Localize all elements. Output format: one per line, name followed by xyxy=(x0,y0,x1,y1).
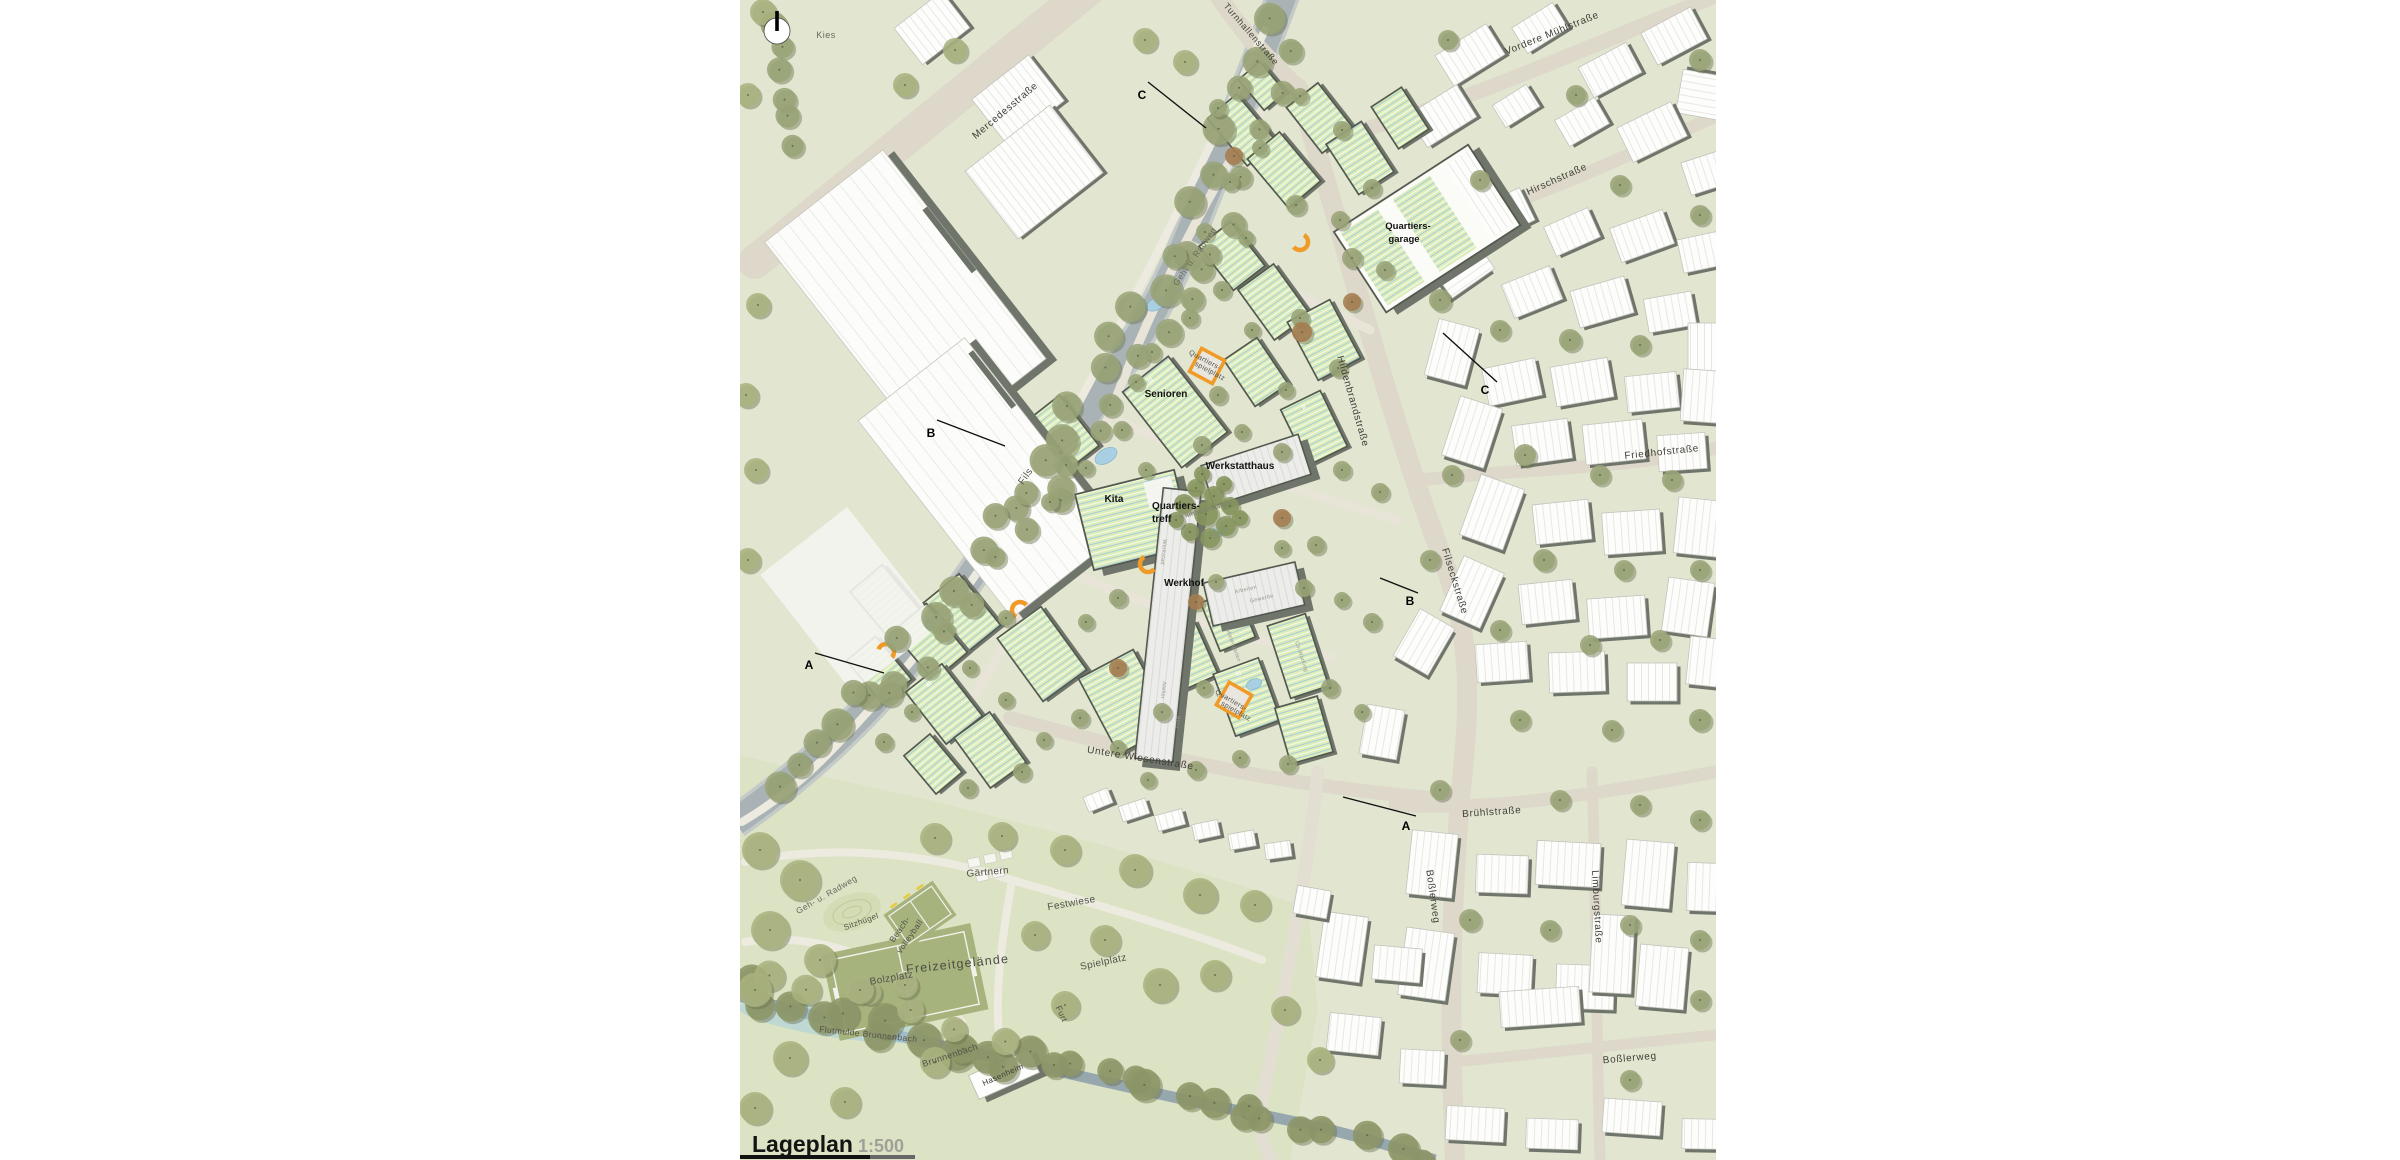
tree-center xyxy=(1203,687,1205,689)
tree-center xyxy=(798,764,800,766)
tree-center xyxy=(1117,597,1119,599)
white-roof xyxy=(1635,944,1688,1010)
existing-building xyxy=(1602,509,1667,559)
white-roof xyxy=(1475,854,1528,894)
tree-center xyxy=(1329,687,1331,689)
white-roof xyxy=(1326,1012,1382,1055)
tree-center xyxy=(1184,61,1186,63)
tree-center xyxy=(757,304,759,306)
tree-center xyxy=(1671,479,1673,481)
tree-center xyxy=(1479,179,1481,181)
tree-center xyxy=(754,1107,756,1109)
tree-center xyxy=(1319,1059,1321,1061)
tree-center xyxy=(1239,517,1241,519)
tree-center xyxy=(1049,501,1051,503)
tree-center xyxy=(759,849,761,851)
tree-center xyxy=(1315,544,1317,546)
existing-building xyxy=(1685,636,1734,692)
tree-center xyxy=(836,723,838,725)
existing-building xyxy=(1499,986,1585,1031)
tree-center xyxy=(934,837,936,839)
tree-center xyxy=(911,711,913,713)
tree-center xyxy=(927,666,929,668)
tree-center xyxy=(969,667,971,669)
tree-center xyxy=(1215,581,1217,583)
existing-building xyxy=(1602,1098,1666,1140)
existing-building xyxy=(1582,419,1650,469)
tree-center xyxy=(983,549,985,551)
tree-center xyxy=(1129,306,1131,308)
tree-center xyxy=(1256,60,1258,62)
tree-center xyxy=(1499,629,1501,631)
tree-center xyxy=(1137,355,1139,357)
tree-center xyxy=(1214,974,1216,976)
tree-center xyxy=(1209,537,1211,539)
section-marker-a2: A xyxy=(1402,819,1411,833)
tree-center xyxy=(1069,1062,1071,1064)
tree-center xyxy=(1239,757,1241,759)
tree-center xyxy=(1295,204,1297,206)
tree-center xyxy=(1108,335,1110,337)
white-roof xyxy=(1548,651,1605,693)
tree-center xyxy=(747,559,749,561)
tree-center xyxy=(1209,253,1211,255)
tree-center xyxy=(1269,17,1271,19)
existing-building xyxy=(1532,499,1596,548)
tree-center xyxy=(1015,507,1017,509)
tree-center xyxy=(943,630,945,632)
tree-center xyxy=(1239,176,1241,178)
tree-center xyxy=(1285,389,1287,391)
tree-center xyxy=(1104,939,1106,941)
section-marker-b1: B xyxy=(927,426,936,440)
tree-center xyxy=(1623,569,1625,571)
tree-center xyxy=(1025,492,1027,494)
existing-building xyxy=(1635,944,1692,1014)
tree-center xyxy=(805,989,807,991)
tree-center xyxy=(1469,919,1471,921)
tree-center xyxy=(755,469,757,471)
tree-center xyxy=(935,616,937,618)
tree-center xyxy=(910,1009,912,1011)
tree-center xyxy=(1065,464,1067,466)
existing-building xyxy=(1673,497,1726,561)
label-werkstatthaus: Werkstatthaus xyxy=(1206,461,1275,472)
tree-center xyxy=(1361,711,1363,713)
tree-center xyxy=(1217,107,1219,109)
tree-center xyxy=(1429,559,1431,561)
tree-center xyxy=(994,515,996,517)
tree-center xyxy=(1189,201,1191,203)
tree-center xyxy=(1144,39,1146,41)
section-marker-c1: C xyxy=(1138,88,1147,102)
white-roof xyxy=(1661,577,1714,637)
tree-center xyxy=(1147,779,1149,781)
tree-center xyxy=(896,637,898,639)
tree-center xyxy=(1241,431,1243,433)
existing-building xyxy=(1518,579,1580,628)
tree-center xyxy=(923,1039,925,1041)
white-roof xyxy=(1499,986,1581,1027)
tree-center xyxy=(1005,699,1007,701)
tree-center xyxy=(1238,87,1240,89)
tree-center xyxy=(1213,495,1215,497)
existing-building xyxy=(1682,1119,1726,1153)
existing-building xyxy=(1326,1012,1386,1059)
tree-center xyxy=(1174,255,1176,257)
label-senioren: Senioren xyxy=(1145,389,1188,400)
tree-center xyxy=(1135,381,1137,383)
title-block: Lageplan 1:500 xyxy=(740,1131,915,1159)
tree-center xyxy=(1351,301,1353,303)
white-roof xyxy=(1264,840,1292,859)
tree-center xyxy=(1199,894,1201,896)
tree-center xyxy=(1699,939,1701,941)
tree-center xyxy=(1161,711,1163,713)
white-roof xyxy=(1676,69,1741,122)
tree-center xyxy=(1459,1039,1461,1041)
tree-center xyxy=(1221,289,1223,291)
tree-center xyxy=(1549,929,1551,931)
tree-center xyxy=(1699,569,1701,571)
tree-center xyxy=(1100,430,1102,432)
white-roof xyxy=(1673,497,1723,557)
white-roof xyxy=(1621,839,1675,909)
tree-center xyxy=(1201,268,1203,270)
white-roof xyxy=(1688,323,1728,373)
tree-center xyxy=(1189,531,1191,533)
existing-building xyxy=(1676,66,1745,123)
tree-center xyxy=(799,879,801,881)
tree-center xyxy=(1117,667,1119,669)
tree-center xyxy=(1524,454,1526,456)
existing-building xyxy=(1399,1049,1448,1089)
tree-center xyxy=(1699,819,1701,821)
tree-center xyxy=(1629,1079,1631,1081)
tree-center xyxy=(1085,621,1087,623)
tree-center xyxy=(1001,835,1003,837)
tree-center xyxy=(1320,1129,1322,1131)
white-roof xyxy=(1602,509,1663,555)
white-roof xyxy=(1445,1106,1505,1143)
tree-center xyxy=(1165,289,1167,291)
tree-center xyxy=(1229,181,1231,183)
tree-center xyxy=(1299,95,1301,97)
tree-center xyxy=(1282,92,1284,94)
tree-center xyxy=(1002,1066,1004,1068)
tree-center xyxy=(1045,459,1047,461)
tree-center xyxy=(1284,1009,1286,1011)
tree-center xyxy=(904,84,906,86)
tree-center xyxy=(1339,219,1341,221)
white-roof xyxy=(1372,945,1423,983)
existing-building xyxy=(1548,651,1609,697)
tree-center xyxy=(1064,849,1066,851)
white-roof xyxy=(1686,862,1726,911)
tree-center xyxy=(987,1056,989,1058)
tree-center xyxy=(1300,1129,1302,1131)
tree-center xyxy=(819,959,821,961)
tree-center xyxy=(816,742,818,744)
tree-center xyxy=(1371,187,1373,189)
tree-center xyxy=(1290,50,1292,52)
tree-center xyxy=(1251,329,1253,331)
white-roof xyxy=(1532,499,1592,545)
tree-center xyxy=(967,787,969,789)
tree-center xyxy=(786,115,788,117)
tree-center xyxy=(1379,491,1381,493)
tree-center xyxy=(1201,444,1203,446)
plan-title: Lageplan xyxy=(752,1131,853,1157)
tree-center xyxy=(745,394,747,396)
tree-center xyxy=(1351,257,1353,259)
tree-center xyxy=(1619,184,1621,186)
white-roof xyxy=(1525,1118,1578,1150)
existing-building xyxy=(1525,1118,1582,1153)
tree-center xyxy=(1061,439,1063,441)
tree-center xyxy=(779,786,781,788)
white-roof xyxy=(1587,595,1648,639)
existing-building xyxy=(1688,323,1732,377)
tree-center xyxy=(1589,644,1591,646)
white-roof xyxy=(1293,885,1331,918)
tree-center xyxy=(1104,367,1106,369)
white-roof xyxy=(1627,663,1677,701)
map-content: IVIVIIIIIIIIIIIIIIIIIIIIII xyxy=(734,0,1744,1160)
tree-center xyxy=(1451,474,1453,476)
tree-center xyxy=(1134,869,1136,871)
tree-center xyxy=(1281,547,1283,549)
existing-building xyxy=(1621,839,1678,913)
tree-center xyxy=(768,974,770,976)
tree-center xyxy=(971,604,973,606)
tree-center xyxy=(778,69,780,71)
tree-center xyxy=(1439,299,1441,301)
label-quartiersgarage-1: Quartiers- xyxy=(1385,221,1430,232)
tree-center xyxy=(1341,129,1343,131)
tree-center xyxy=(1639,804,1641,806)
white-roof xyxy=(1316,911,1369,982)
tree-center xyxy=(1281,451,1283,453)
existing-building xyxy=(1627,663,1681,705)
tree-center xyxy=(1109,404,1111,406)
tree-center xyxy=(852,692,854,694)
tree-center xyxy=(953,590,955,592)
tree-center xyxy=(953,1028,955,1030)
tree-center xyxy=(1233,155,1235,157)
tree-center xyxy=(783,99,785,101)
tree-center xyxy=(1699,719,1701,721)
tree-center xyxy=(1043,739,1045,741)
tree-center xyxy=(1301,331,1303,333)
tree-center xyxy=(1232,223,1234,225)
tree-center xyxy=(1195,601,1197,603)
tree-center xyxy=(1629,924,1631,926)
tree-center xyxy=(1021,771,1023,773)
tree-center xyxy=(1543,559,1545,561)
site-plan-map: IVIVIIIIIIIIIIIIIIIIIIIIII xyxy=(0,0,2400,1160)
tree-center xyxy=(1034,934,1036,936)
tree-center xyxy=(1053,1064,1055,1066)
tree-center xyxy=(1109,1070,1111,1072)
plan-scale: 1:500 xyxy=(858,1136,904,1156)
tree-center xyxy=(904,984,906,986)
tree-center xyxy=(1575,94,1577,96)
tree-center xyxy=(1213,1102,1215,1104)
tree-center xyxy=(1519,719,1521,721)
section-marker-b2: B xyxy=(1406,594,1415,608)
label-quartiersgarage-2: garage xyxy=(1388,234,1419,245)
tree-center xyxy=(1259,147,1261,149)
tree-center xyxy=(884,1019,886,1021)
tree-center xyxy=(1121,429,1123,431)
white-roof xyxy=(1475,641,1530,683)
tree-center xyxy=(1143,1084,1145,1086)
tree-center xyxy=(1026,529,1028,531)
existing-building xyxy=(1587,595,1651,643)
tree-center xyxy=(883,741,885,743)
tree-center xyxy=(1447,39,1449,41)
tree-center xyxy=(762,11,764,13)
site-plan-page: IVIVIIIIIIIIIIIIIIIIIIIIII xyxy=(0,0,2400,1160)
tree-center xyxy=(1303,587,1305,589)
white-roof xyxy=(1477,953,1533,996)
tree-center xyxy=(823,1017,825,1019)
tree-center xyxy=(1499,329,1501,331)
tree-center xyxy=(1659,639,1661,641)
tree-center xyxy=(1213,174,1215,176)
section-marker-c2: C xyxy=(1481,383,1490,397)
tree-center xyxy=(1085,467,1087,469)
tree-center xyxy=(1189,317,1191,319)
tree-center xyxy=(1639,344,1641,346)
tree-center xyxy=(781,46,783,48)
tree-center xyxy=(859,989,861,991)
scale-bar-segment xyxy=(870,1155,915,1159)
existing-building xyxy=(1445,1106,1508,1147)
white-roof xyxy=(1624,371,1679,412)
tree-center xyxy=(1258,128,1260,130)
tree-center xyxy=(769,929,771,931)
tree-center xyxy=(1245,237,1247,239)
label-kies: Kies xyxy=(816,30,836,40)
tree-center xyxy=(1341,469,1343,471)
white-roof xyxy=(1680,369,1724,424)
tree-center xyxy=(1201,473,1203,475)
existing-building xyxy=(1624,371,1683,416)
tree-center xyxy=(747,94,749,96)
tree-center xyxy=(1029,1051,1031,1053)
tree-center xyxy=(789,1005,791,1007)
tree-center xyxy=(1402,1148,1404,1150)
tree-center xyxy=(869,694,871,696)
tree-center xyxy=(1559,799,1561,801)
tree-center xyxy=(888,692,890,694)
tree-center xyxy=(1599,474,1601,476)
tree-center xyxy=(754,989,756,991)
existing-building xyxy=(1686,862,1729,915)
tree-center xyxy=(792,145,794,147)
existing-building xyxy=(1661,577,1718,641)
tree-center xyxy=(1191,298,1193,300)
tree-center xyxy=(1281,517,1283,519)
white-roof xyxy=(1399,1049,1445,1085)
label-kita: Kita xyxy=(1105,494,1124,505)
tree-center xyxy=(1175,519,1177,521)
tree-center xyxy=(1699,214,1701,216)
tree-center xyxy=(1287,763,1289,765)
tree-center xyxy=(842,1013,844,1015)
tree-center xyxy=(1384,269,1386,271)
tree-center xyxy=(1079,717,1081,719)
white-roof xyxy=(1686,636,1731,688)
tree-center xyxy=(1366,1134,1368,1136)
tree-center xyxy=(1004,1041,1006,1043)
tree-center xyxy=(1223,483,1225,485)
tree-center xyxy=(1258,1117,1260,1119)
tree-center xyxy=(1439,789,1441,791)
tree-center xyxy=(1699,59,1701,61)
tree-center xyxy=(954,49,956,51)
tree-center xyxy=(1248,1105,1250,1107)
tree-center xyxy=(1145,469,1147,471)
tree-center xyxy=(1168,331,1170,333)
white-roof xyxy=(1518,579,1576,624)
existing-building xyxy=(1680,369,1727,427)
existing-building xyxy=(1475,641,1533,686)
tree-center xyxy=(1341,599,1343,601)
label-werkhof: Werkhof xyxy=(1164,578,1204,589)
existing-building xyxy=(1292,885,1334,923)
tree-center xyxy=(1195,487,1197,489)
section-marker-a1: A xyxy=(805,658,814,672)
tree-center xyxy=(844,1101,846,1103)
tree-center xyxy=(1611,729,1613,731)
tree-center xyxy=(1159,984,1161,986)
white-roof xyxy=(1602,1098,1662,1136)
tree-center xyxy=(1005,617,1007,619)
tree-center xyxy=(1371,621,1373,623)
white-roof xyxy=(1682,1119,1723,1150)
label-quartierstreff-2: treff xyxy=(1152,514,1172,525)
tree-center xyxy=(789,1057,791,1059)
tree-center xyxy=(1151,351,1153,353)
tree-center xyxy=(1189,1095,1191,1097)
tree-center xyxy=(1225,525,1227,527)
tree-center xyxy=(994,556,996,558)
tree-center xyxy=(1569,339,1571,341)
tree-center xyxy=(1217,394,1219,396)
tree-center xyxy=(1254,904,1256,906)
tree-center xyxy=(1218,128,1220,130)
existing-building xyxy=(1371,945,1426,987)
tree-center xyxy=(1699,999,1701,1001)
tree-center xyxy=(1066,405,1068,407)
tree-center xyxy=(1299,317,1301,319)
tree-center xyxy=(1195,769,1197,771)
existing-building xyxy=(1475,854,1532,897)
scale-bar xyxy=(740,1155,870,1159)
existing-building xyxy=(1315,911,1372,986)
